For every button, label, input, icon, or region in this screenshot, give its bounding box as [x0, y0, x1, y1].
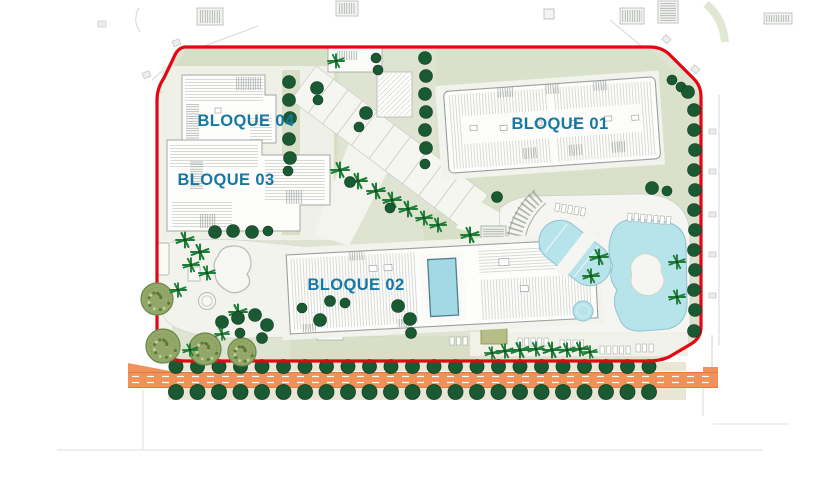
road-merge: [128, 363, 175, 372]
tree-icon: [249, 309, 262, 322]
stairs: [236, 77, 262, 90]
tree-icon: [283, 133, 296, 146]
street-tree-icon: [169, 385, 184, 400]
pool-island: [631, 254, 664, 296]
tree-icon: [689, 304, 702, 317]
stairs: [593, 80, 608, 91]
street-furniture: [691, 65, 700, 74]
neighbour-building: [544, 9, 554, 19]
tree-icon: [646, 182, 659, 195]
hedge: [481, 328, 507, 344]
street-tree-icon: [319, 385, 334, 400]
lounger-row: [450, 337, 467, 345]
lounger-icon: [600, 346, 604, 354]
stairs: [568, 144, 583, 156]
lounger-icon: [640, 214, 645, 222]
tree-icon: [360, 107, 373, 120]
green-verge: [706, 4, 725, 42]
lounger-icon: [649, 344, 653, 352]
street-tree-icon: [212, 385, 227, 400]
tree-icon: [406, 328, 417, 339]
tree-icon: [688, 244, 701, 257]
stairs: [522, 147, 539, 159]
lounger-icon: [525, 338, 529, 346]
tree-icon: [263, 226, 273, 236]
street-tree-icon: [427, 385, 442, 400]
tree-icon: [284, 152, 297, 165]
tree-icon: [232, 312, 245, 325]
tree-icon: [283, 76, 296, 89]
tree-icon: [311, 82, 324, 95]
glass-canopy: [377, 72, 412, 117]
lounger-icon: [538, 338, 542, 346]
street-tree-icon: [276, 385, 291, 400]
street-tree-icon: [405, 385, 420, 400]
street-furniture: [142, 71, 151, 79]
street-tree-icon: [556, 385, 571, 400]
neighbour-building: [197, 8, 223, 25]
lounger-icon: [627, 213, 632, 221]
lounger-icon: [647, 215, 652, 223]
tree-icon: [492, 192, 503, 203]
neighbour-building: [658, 1, 678, 23]
street-tree-icon: [620, 385, 635, 400]
street-tree-icon: [534, 385, 549, 400]
kids-pool: [573, 301, 593, 321]
neighbour-building: [620, 8, 644, 24]
canopy-tree-icon: [228, 338, 256, 366]
roof-hatch: [170, 143, 258, 167]
tree-icon: [420, 142, 433, 155]
street-tree-icon: [362, 385, 377, 400]
tree-icon: [688, 325, 701, 338]
tree-icon: [688, 284, 701, 297]
street-furniture: [172, 39, 181, 47]
lounger-icon: [626, 346, 630, 354]
tree-icon: [419, 124, 432, 137]
stairs: [285, 190, 303, 204]
tree-icon: [420, 106, 433, 119]
tree-icon: [404, 313, 417, 326]
lounger-icon: [463, 337, 467, 345]
tree-icon: [667, 75, 677, 85]
street-tree-icon: [341, 385, 356, 400]
lounger-icon: [620, 346, 624, 354]
tree-icon: [314, 314, 327, 327]
street-tree-icon: [577, 385, 592, 400]
tree-icon: [689, 144, 702, 157]
site-plan: BLOQUE 04 BLOQUE 03 BLOQUE 01 BLOQUE 02: [0, 0, 819, 492]
tree-icon: [662, 186, 672, 196]
tree-icon: [354, 122, 364, 132]
tree-icon: [689, 264, 702, 277]
neighbour-building: [336, 1, 358, 16]
lounger-icon: [643, 344, 647, 352]
tree-icon: [235, 328, 245, 338]
tree-icon: [419, 88, 432, 101]
tree-icon: [688, 204, 701, 217]
lounger-icon: [634, 214, 639, 222]
tree-icon: [345, 177, 356, 188]
lounger-icon: [613, 346, 617, 354]
bloque-04-label[interactable]: BLOQUE 04: [197, 112, 295, 130]
street-tree-icon: [642, 385, 657, 400]
curb-curve: [136, 8, 140, 32]
street-tree-icon: [599, 385, 614, 400]
street-tree-icon: [470, 385, 485, 400]
bloque-01-label[interactable]: BLOQUE 01: [511, 115, 608, 133]
fountain: [199, 293, 216, 310]
rooftop-pool: [428, 258, 459, 316]
stairs: [545, 83, 560, 94]
canopy-tree-icon: [146, 329, 180, 363]
tree-icon: [688, 104, 701, 117]
tree-icon: [689, 224, 702, 237]
tree-icon: [297, 303, 307, 313]
bloque-02-label[interactable]: BLOQUE 02: [307, 276, 404, 294]
lounger-icon: [450, 337, 454, 345]
street-lamps: [709, 129, 716, 298]
lounger-icon: [653, 215, 658, 223]
street-tree-icon: [448, 385, 463, 400]
tree-icon: [420, 159, 430, 169]
lounger-icon: [666, 216, 671, 224]
pond: [214, 246, 251, 293]
tree-icon: [682, 86, 695, 99]
tree-icon: [209, 226, 222, 239]
lounger-icon: [457, 337, 461, 345]
canopy-tree-icon: [141, 283, 173, 315]
tree-icon: [325, 296, 336, 307]
tree-icon: [261, 319, 274, 332]
street-tree-icon: [233, 385, 248, 400]
lounger-icon: [607, 346, 611, 354]
site-plan-drawing: BLOQUE 04 BLOQUE 03 BLOQUE 01 BLOQUE 02: [0, 0, 819, 492]
bloque-03-label[interactable]: BLOQUE 03: [177, 171, 274, 189]
tree-icon: [216, 316, 229, 329]
tree-icon: [283, 94, 296, 107]
tree-icon: [385, 203, 395, 213]
tree-icon: [688, 164, 701, 177]
lounger-icon: [636, 344, 640, 352]
street-furniture: [98, 21, 106, 27]
tree-icon: [227, 225, 240, 238]
lounger-row: [636, 344, 653, 352]
tree-icon: [420, 70, 433, 83]
street-tree-icon: [513, 385, 528, 400]
tree-icon: [373, 65, 383, 75]
tree-icon: [313, 95, 323, 105]
tree-icon: [283, 166, 293, 176]
stairs: [611, 141, 626, 153]
tree-icon: [246, 226, 259, 239]
lounger-icon: [544, 338, 548, 346]
street-tree-icon: [491, 385, 506, 400]
street-tree-icon: [190, 385, 205, 400]
tree-icon: [688, 124, 701, 137]
neighbour-building: [764, 13, 792, 24]
lounger-icon: [660, 216, 665, 224]
tree-icon: [419, 52, 432, 65]
street-tree-icon: [255, 385, 270, 400]
stairs: [497, 87, 514, 98]
stairs: [348, 251, 364, 261]
street-tree-icon: [298, 385, 313, 400]
tree-icon: [371, 53, 381, 63]
stairs: [302, 324, 316, 333]
tree-icon: [340, 298, 350, 308]
tree-icon: [257, 333, 268, 344]
street-tree-icon: [384, 385, 399, 400]
street-furniture: [662, 35, 671, 44]
tree-icon: [392, 300, 405, 313]
tree-icon: [689, 184, 702, 197]
